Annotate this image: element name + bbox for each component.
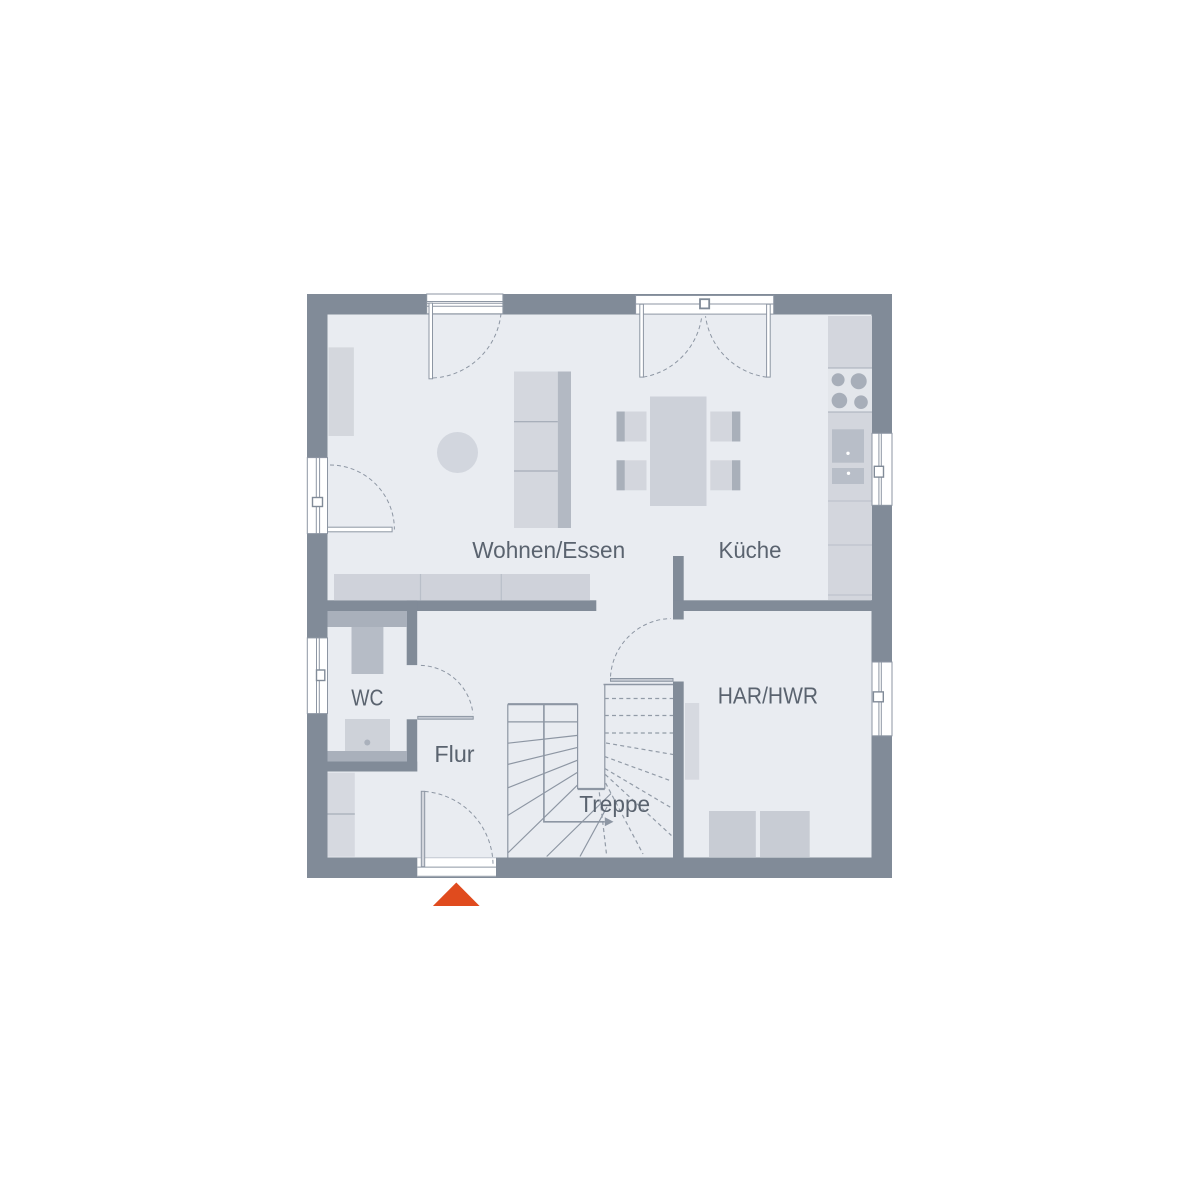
svg-text:Treppe: Treppe bbox=[579, 791, 650, 817]
svg-text:Flur: Flur bbox=[434, 741, 475, 767]
svg-text:Küche: Küche bbox=[719, 537, 782, 563]
svg-text:Wohnen/Essen: Wohnen/Essen bbox=[472, 537, 625, 563]
svg-text:WC: WC bbox=[351, 684, 383, 710]
svg-text:HAR/HWR: HAR/HWR bbox=[718, 683, 818, 709]
